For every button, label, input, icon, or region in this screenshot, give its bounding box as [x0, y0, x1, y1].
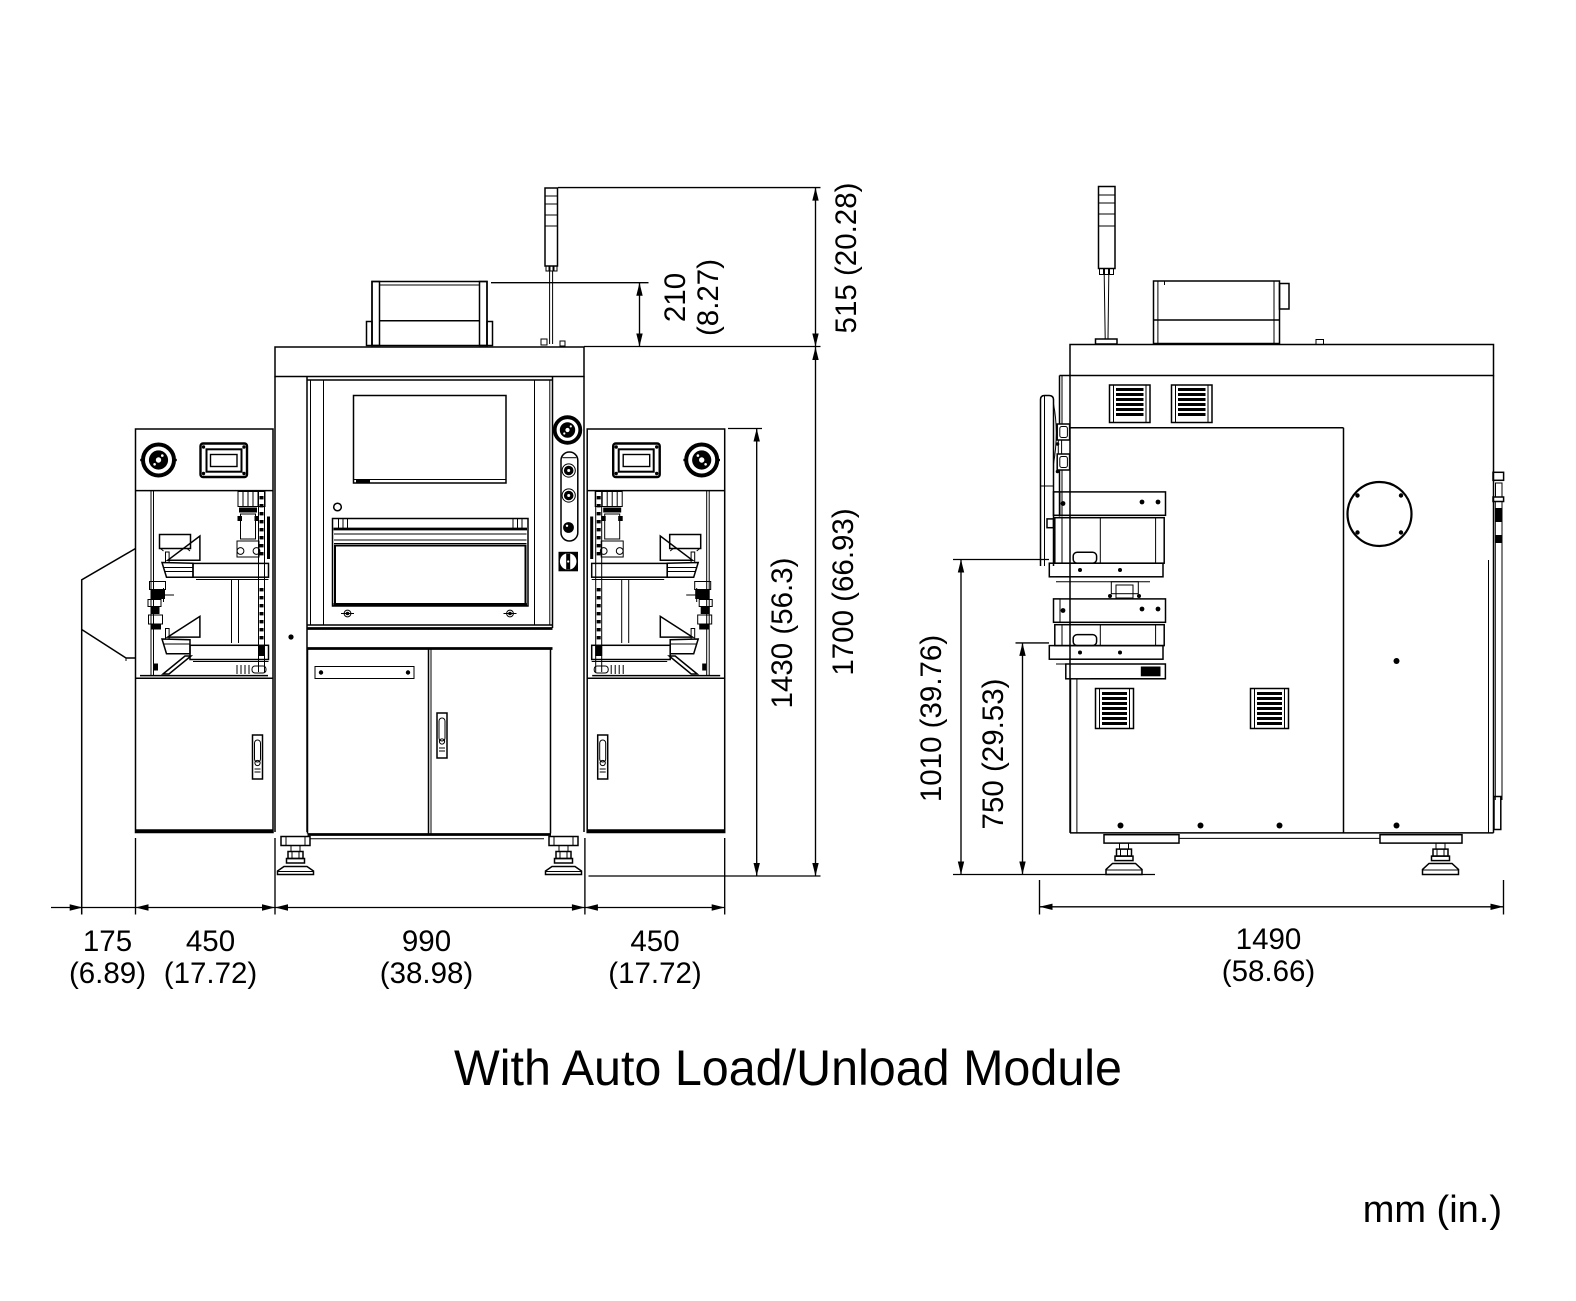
svg-text:175: 175: [83, 925, 132, 958]
svg-text:mm (in.): mm (in.): [1363, 1189, 1502, 1231]
svg-text:1490: 1490: [1236, 923, 1302, 956]
svg-text:(17.72): (17.72): [608, 957, 701, 990]
svg-text:210: 210: [659, 273, 692, 322]
svg-text:(58.66): (58.66): [1222, 955, 1315, 988]
svg-text:(38.98): (38.98): [380, 957, 473, 990]
svg-text:1430 (56.3): 1430 (56.3): [766, 558, 799, 709]
svg-text:450: 450: [630, 925, 679, 958]
svg-text:515 (20.28): 515 (20.28): [830, 183, 863, 334]
svg-text:With Auto Load/Unload Module: With Auto Load/Unload Module: [454, 1040, 1122, 1096]
svg-text:(6.89): (6.89): [69, 957, 146, 990]
svg-text:(8.27): (8.27): [692, 259, 725, 336]
svg-text:450: 450: [186, 925, 235, 958]
svg-text:1700 (66.93): 1700 (66.93): [827, 508, 860, 675]
svg-text:(17.72): (17.72): [164, 957, 257, 990]
svg-text:990: 990: [402, 925, 451, 958]
svg-text:1010 (39.76): 1010 (39.76): [915, 635, 948, 802]
svg-text:750 (29.53): 750 (29.53): [977, 679, 1010, 830]
